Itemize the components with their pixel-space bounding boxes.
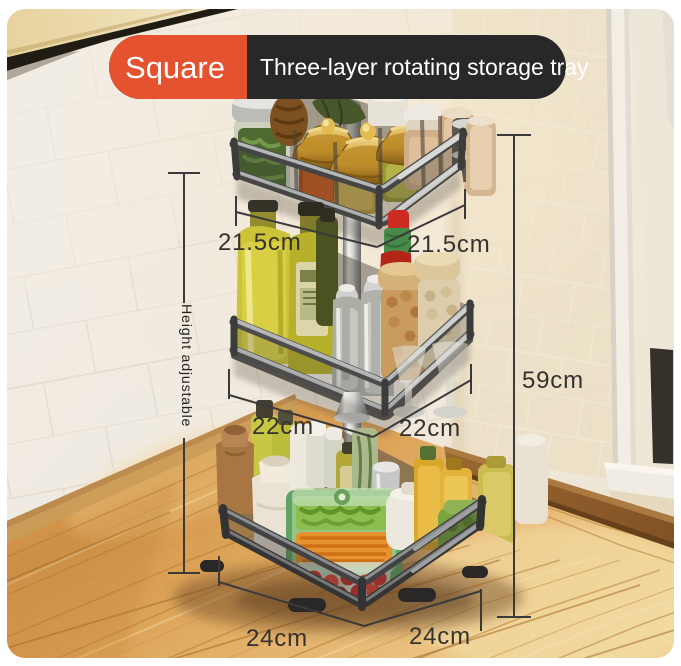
svg-text:59cm: 59cm [522,367,584,394]
svg-text:21.5cm: 21.5cm [407,231,491,258]
svg-text:22cm: 22cm [252,413,314,440]
svg-text:Three-layer rotating storage t: Three-layer rotating storage tray [260,54,589,80]
svg-text:21.5cm: 21.5cm [218,229,302,256]
svg-text:Height adjustable: Height adjustable [178,304,194,427]
svg-text:24cm: 24cm [409,623,471,650]
svg-text:24cm: 24cm [246,625,308,652]
svg-text:22cm: 22cm [399,415,461,442]
svg-text:Square: Square [125,50,225,85]
